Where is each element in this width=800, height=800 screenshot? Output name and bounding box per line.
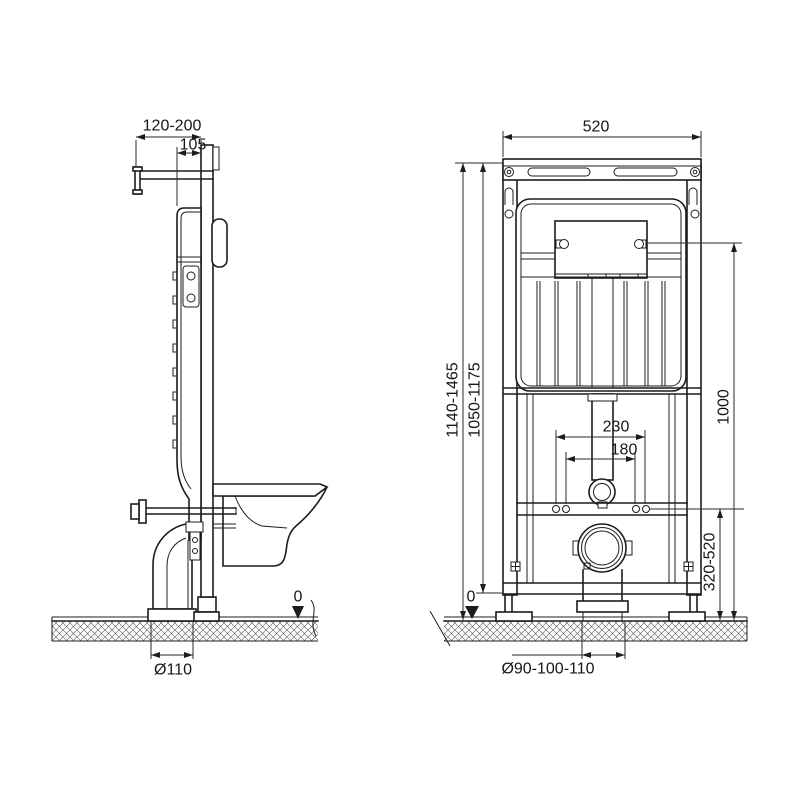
corner-screw-right (691, 168, 700, 177)
keyhole-screw-left (560, 240, 569, 249)
drain-outlet (573, 524, 632, 621)
inspection-box (555, 221, 647, 278)
toilet-bowl-side (213, 484, 327, 566)
dim-label-height-total: 1140-1465 (445, 362, 462, 437)
cistern-front (516, 199, 686, 391)
datum-label-front: 0 (467, 589, 476, 606)
dim-label-outlet-diameter: Ø90-100-110 (501, 661, 594, 678)
bolt-hole (563, 506, 570, 513)
dim-label-outlet-height: 320-520 (702, 533, 719, 592)
dim-label-wall-offset: 120-200 (143, 118, 202, 135)
dim-frame-width: 520 (503, 119, 701, 158)
rail-screw-right (691, 210, 699, 218)
foot-plate-left (496, 612, 532, 621)
dim-label-bolt-inner: 180 (611, 442, 638, 459)
flush-pipe-flange (588, 394, 617, 401)
dim-height-frame: 1050-1175 (467, 163, 504, 593)
dim-label-bracket-offset: 105 (180, 137, 207, 154)
foot-plate-right (669, 612, 705, 621)
hanger-hook-right (689, 188, 697, 205)
dim-label-height-frame: 1050-1175 (467, 362, 484, 437)
inlet-fitting (589, 479, 615, 505)
datum-label-side: 0 (294, 589, 303, 606)
rail-top-bracket (213, 147, 219, 170)
dim-label-bolt-outer: 230 (603, 419, 630, 436)
bolt-hole (643, 506, 650, 513)
dim-label-drain-diameter-side: Ø110 (154, 662, 192, 679)
frame-rail-right (687, 163, 701, 595)
frame-rail-side (201, 145, 219, 597)
dim-label-panel-height: 1000 (716, 389, 733, 425)
cistern-side (173, 208, 201, 540)
dim-label-frame-width: 520 (583, 119, 610, 136)
datum-level-side: 0 (292, 589, 304, 620)
corner-screw-left (505, 168, 514, 177)
drain-flange-side (148, 609, 196, 621)
top-slot-left (528, 168, 590, 176)
hanger-hook-left (505, 188, 513, 205)
flush-plate-side (212, 219, 227, 267)
adjuster-mark-right (684, 562, 693, 571)
bowl-rim (213, 484, 327, 496)
top-slot-right (614, 168, 677, 176)
rail-foot-side (194, 597, 219, 621)
drawing-page: 120-200 105 Ø110 0 (0, 0, 800, 800)
keyhole-screw-right (635, 240, 644, 249)
side-view: 120-200 105 Ø110 0 (52, 118, 327, 679)
front-view: 520 1140-1465 1050-1175 1000 (430, 119, 747, 678)
adjuster-mark-left (511, 562, 520, 571)
technical-drawing: 120-200 105 Ø110 0 (0, 0, 800, 800)
drain-flange-front (577, 601, 628, 612)
valve-handle (131, 504, 139, 519)
rail-screw-left (505, 210, 513, 218)
bolt-hole (553, 506, 560, 513)
bolt-hole (633, 506, 640, 513)
frame-rail-left (503, 163, 517, 595)
